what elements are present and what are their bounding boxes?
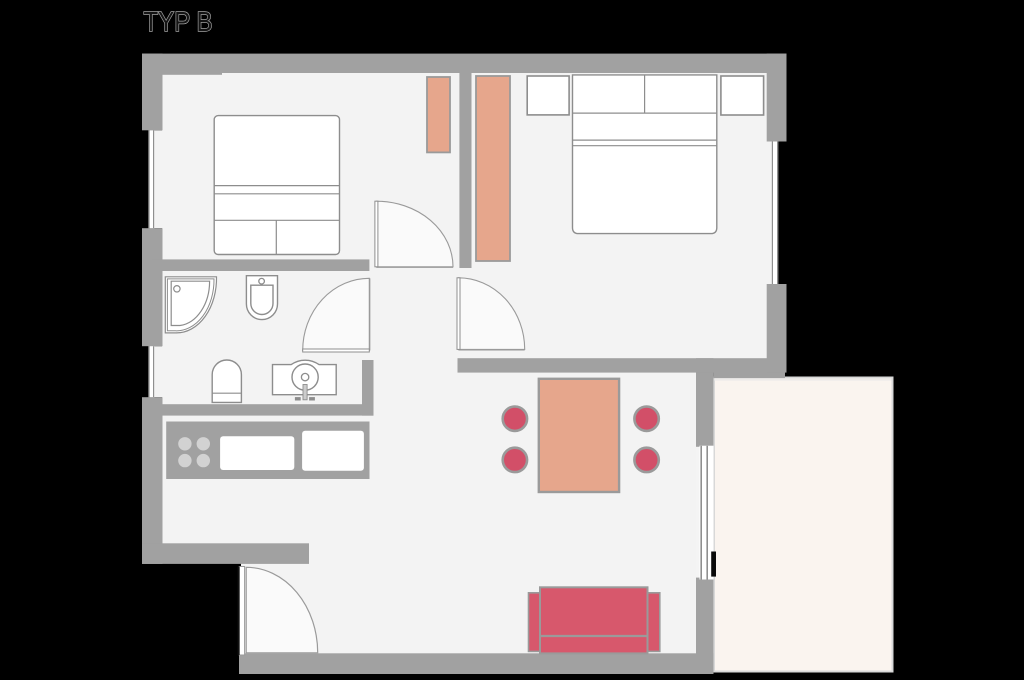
svg-text:TYP B: TYP B	[144, 6, 213, 37]
